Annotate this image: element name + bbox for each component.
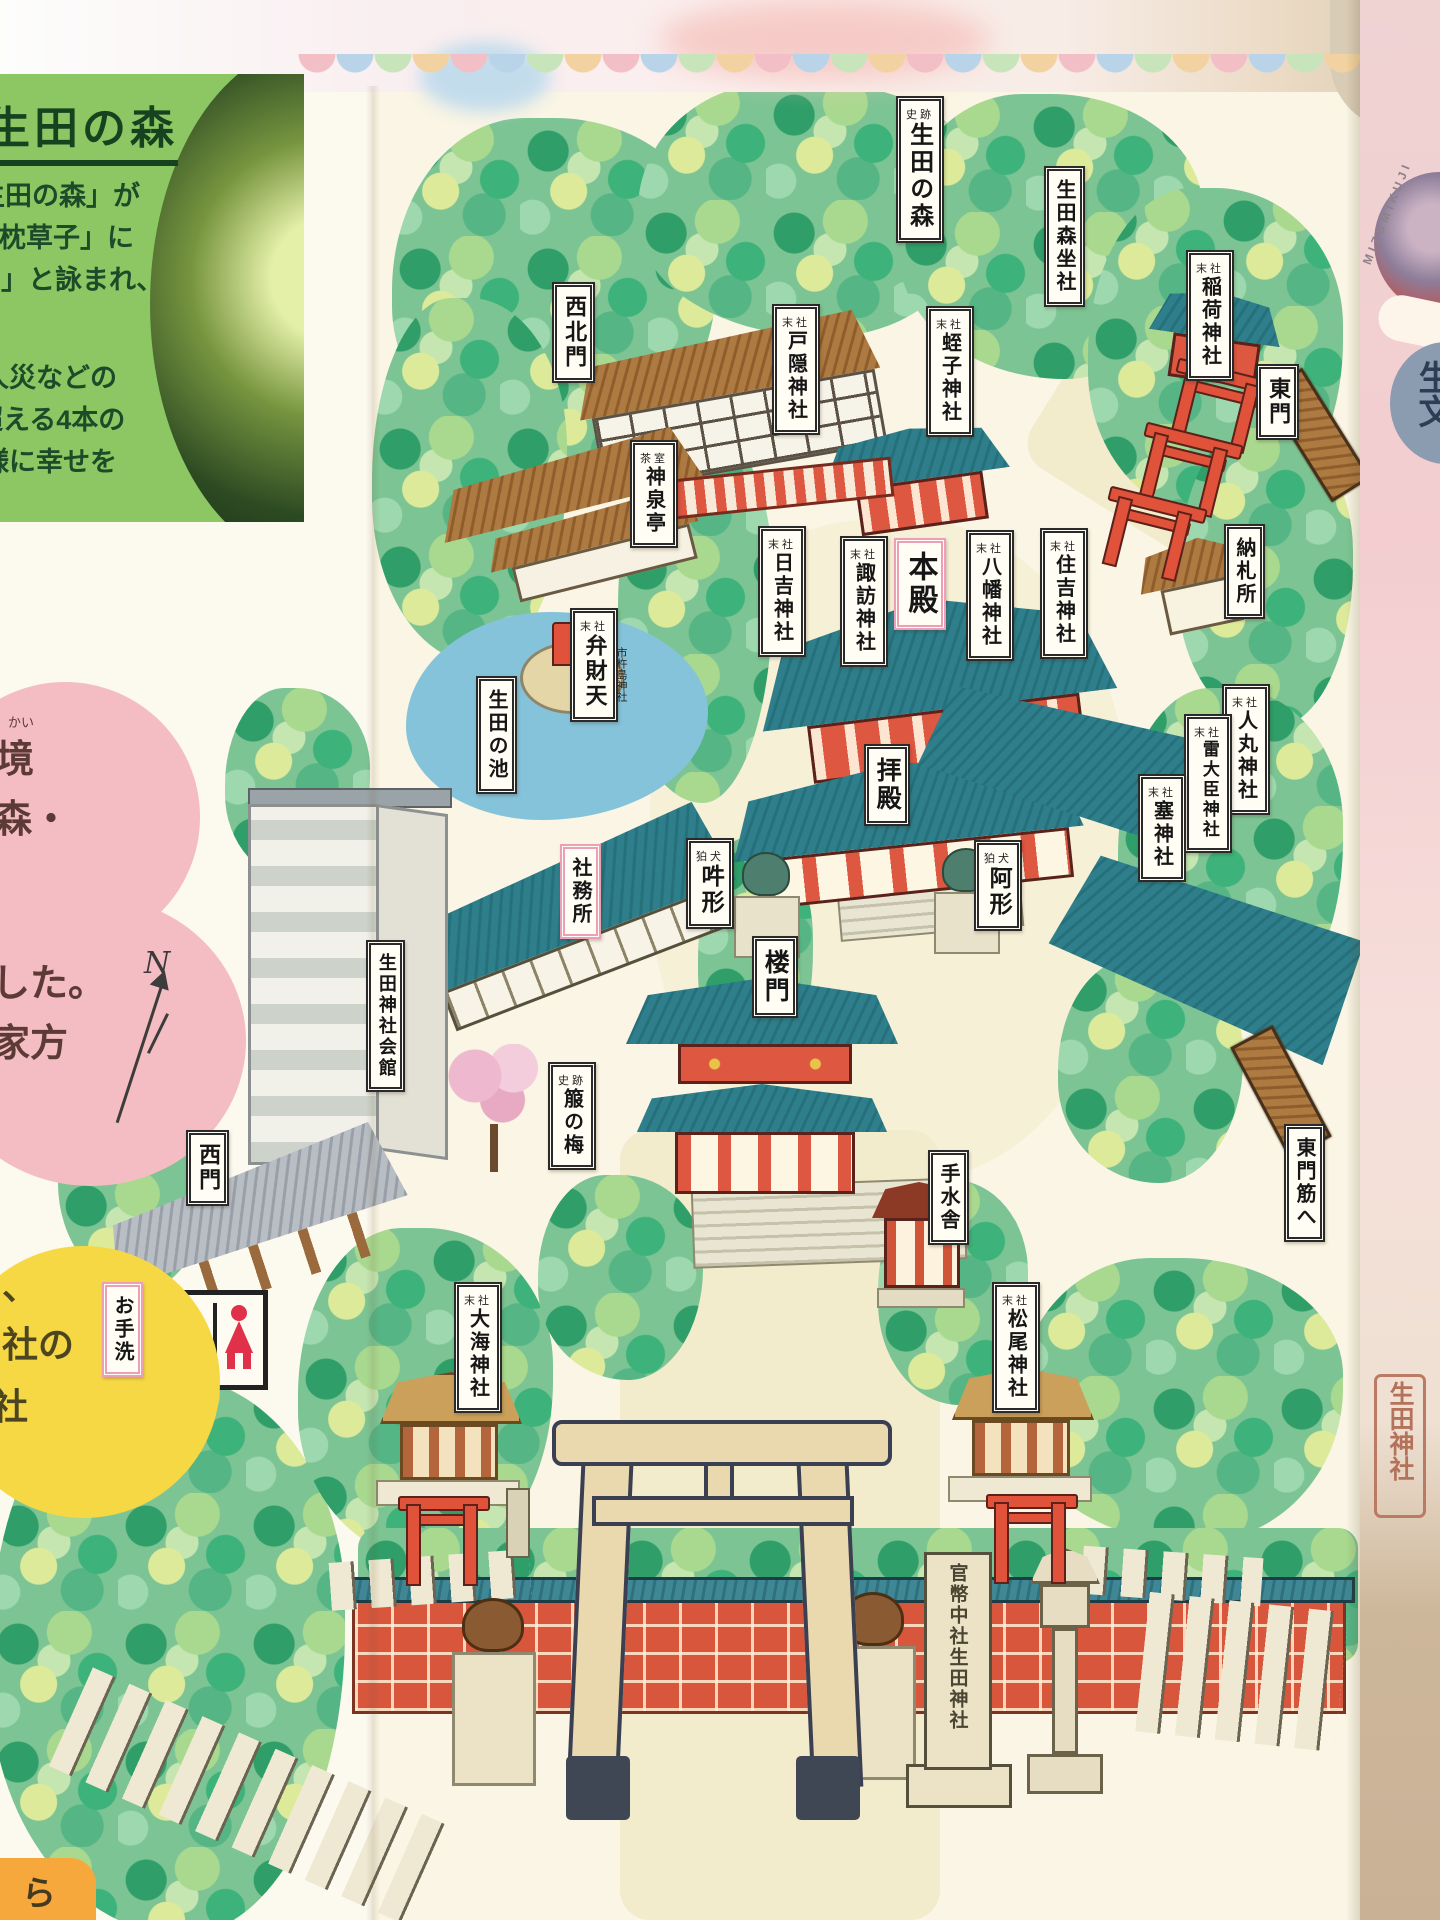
scallop-border <box>298 54 1366 90</box>
label-text: お手洗 <box>112 1295 133 1364</box>
map-label-seihokumon: 西北門 <box>552 282 595 383</box>
label-text: 戸隠神社 <box>786 330 807 422</box>
label-text: 東門筋へ <box>1294 1137 1315 1229</box>
daikai-torii <box>398 1496 486 1588</box>
label-text: 八幡神社 <box>980 556 1001 648</box>
map-label-ikutanomori: 史跡 生田の森 <box>896 96 944 243</box>
label-prefix: 末社 <box>850 549 878 560</box>
label-prefix: 末社 <box>768 539 796 550</box>
label-text: 生田神社会館 <box>376 953 395 1079</box>
map-label-nosatsusho: 納札所 <box>1224 524 1265 619</box>
label-text: 楼門 <box>762 949 788 1005</box>
map-label-higashimon: 東門 <box>1256 364 1299 440</box>
map-label-ikutanoike: 生田の池 <box>476 676 517 794</box>
daikai-body <box>400 1424 498 1480</box>
shrine-stamp-text: 生田神社 <box>1382 1381 1418 1515</box>
label-prefix: 狛犬 <box>984 853 1012 864</box>
label-text: 日吉神社 <box>772 552 793 644</box>
label-prefix: 末社 <box>1002 1295 1030 1306</box>
big-torii-right-shoe <box>796 1756 860 1820</box>
label-prefix: 史跡 <box>558 1075 586 1086</box>
orange-fragment: ら <box>0 1858 96 1920</box>
label-prefix: 末社 <box>580 621 608 632</box>
temizusha-base <box>877 1288 966 1308</box>
panel-title: 生田の森 <box>0 92 178 166</box>
map-label-ungyo: 狛犬 吽形 <box>686 838 734 929</box>
yellow-note-line1: 、 <box>2 1258 38 1310</box>
romon-pillars <box>675 1132 855 1194</box>
label-prefix: 末社 <box>976 543 1004 554</box>
stone-pedestal <box>452 1652 536 1786</box>
map-label-higashimonsuji: 東門筋へ <box>1284 1124 1325 1242</box>
map-label-shinsentei: 茶室 神泉亭 <box>630 440 678 548</box>
map-label-ikazuchi: 末社 雷大臣神社 <box>1184 714 1232 853</box>
romon-lower-roof <box>637 1084 887 1132</box>
ebira-plum-tree <box>442 1044 552 1172</box>
label-text: 生田森坐社 <box>1054 179 1075 294</box>
label-text: 西門 <box>196 1143 219 1193</box>
map-label-ikutamori-imasu: 生田森坐社 <box>1044 166 1085 307</box>
plum-trunk <box>490 1124 498 1172</box>
label-prefix: 末社 <box>936 319 964 330</box>
map-label-matsuo: 末社 松尾神社 <box>992 1282 1040 1413</box>
label-text: 塞神社 <box>1152 800 1173 869</box>
woman-icon <box>225 1305 253 1375</box>
label-text: 拝殿 <box>874 757 900 813</box>
label-prefix: 末社 <box>1194 727 1222 738</box>
map-label-sumiyoshi: 末社 住吉神社 <box>1040 528 1088 659</box>
label-prefix: 茶室 <box>640 453 668 464</box>
map-label-suwa: 末社 諏訪神社 <box>840 536 888 667</box>
label-text: 納札所 <box>1234 537 1255 606</box>
map-label-kaikan: 生田神社会館 <box>366 940 405 1092</box>
stone-pillar: 官幣中社生田神社 <box>924 1552 992 1770</box>
label-text: 大海神社 <box>468 1308 489 1400</box>
map-label-nishimon: 西門 <box>186 1130 229 1206</box>
kaikan-building <box>248 788 448 1173</box>
map-label-haiden: 拝殿 <box>864 744 910 826</box>
orange-fragment-text: ら <box>22 1866 56 1915</box>
panel-line-4: 人災などの <box>0 356 117 395</box>
label-text: 人丸神社 <box>1236 710 1257 802</box>
label-text: 社務所 <box>570 857 591 926</box>
guardian-lion-left <box>462 1598 536 1786</box>
big-torii-tiebar <box>592 1496 854 1526</box>
pink-note-line2: 森・ <box>0 788 70 843</box>
plum-blossoms <box>442 1044 552 1124</box>
label-text: 生田の池 <box>486 689 507 781</box>
label-prefix: 末社 <box>464 1295 492 1306</box>
pink-note-line1: 境 <box>0 728 34 783</box>
mizumikuji-photo-circle <box>1374 172 1440 312</box>
label-text: 手水舎 <box>938 1163 959 1232</box>
lantern-post <box>1052 1628 1078 1754</box>
label-prefix: 末社 <box>782 317 810 328</box>
panel-line-2: 「枕草子」に <box>0 216 134 255</box>
map-label-honden: 本殿 <box>894 538 946 630</box>
label-prefix: 末社 <box>1148 787 1176 798</box>
label-prefix: 狛犬 <box>696 851 724 862</box>
label-prefix: 史跡 <box>906 109 934 120</box>
panel-line-6: 様に幸せを <box>0 440 117 479</box>
map-label-ebiranoume: 史跡 箙の梅 <box>548 1062 596 1170</box>
map-label-romon: 楼門 <box>752 936 798 1018</box>
label-prefix: 末社 <box>1050 541 1078 552</box>
label-prefix: 末社 <box>1196 263 1224 274</box>
map-label-agyo: 狛犬 阿形 <box>974 840 1022 931</box>
yellow-note-line3: 社 <box>0 1378 28 1430</box>
big-torii-left-shoe <box>566 1756 630 1820</box>
map-label-otearai: お手洗 <box>102 1282 143 1377</box>
lion-figure <box>462 1598 524 1652</box>
stone-post-fence-right <box>1135 1592 1349 1752</box>
label-prefix: 末社 <box>1232 697 1260 708</box>
panel-line-5: 超える4本の <box>0 398 125 437</box>
blue-title-circle: 生文 <box>1390 342 1440 464</box>
map-label-hiyoshi: 末社 日吉神社 <box>758 526 806 657</box>
label-text: 神泉亭 <box>644 466 665 535</box>
label-text: 東門 <box>1266 377 1289 427</box>
map-label-temizusha: 手水舎 <box>928 1150 969 1245</box>
daikai-stone-lantern <box>506 1488 530 1558</box>
label-text: 本殿 <box>904 551 936 617</box>
yellow-note-line2: 社の <box>2 1316 74 1368</box>
big-torii-lintel <box>552 1420 892 1466</box>
map-label-hiruko: 末社 蛭子神社 <box>926 306 974 437</box>
map-label-hachiman: 末社 八幡神社 <box>966 530 1014 661</box>
blue-circle-text: 生文 <box>1408 360 1440 428</box>
map-label-shamusho: 社務所 <box>560 844 601 939</box>
panel-line-1: 生田の森」が <box>0 174 140 213</box>
stone-pillar-base <box>906 1764 1012 1808</box>
ikuta-forest-panel: 生田の森 生田の森」が 「枕草子」に ‥」と詠まれ、 人災などの 超える4本の … <box>0 74 304 522</box>
lion-figure <box>742 852 790 896</box>
lantern-base <box>1027 1754 1103 1794</box>
label-text: 生田の森 <box>907 122 932 230</box>
shrine-stamp: 生田神社 <box>1374 1374 1426 1518</box>
label-text: 稲荷神社 <box>1200 276 1221 368</box>
label-text: 蛭子神社 <box>940 332 961 424</box>
label-text: 弁財天 <box>582 634 605 709</box>
label-text: 阿形 <box>986 866 1010 918</box>
benzaiten-side-note: 市杵島神社 <box>613 647 629 702</box>
stone-pillar-text: 官幣中社生田神社 <box>945 1563 972 1767</box>
label-text: 諏訪神社 <box>854 562 875 654</box>
pink-note2-line2: 家方 <box>0 1012 68 1067</box>
map-label-sainokami: 末社 塞神社 <box>1138 774 1186 882</box>
label-text: 住吉神社 <box>1054 554 1075 646</box>
brochure-photo: 生田の森 生田の森」が 「枕草子」に ‥」と詠まれ、 人災などの 超える4本の … <box>0 0 1440 1920</box>
map-label-inari: 末社 稲荷神社 <box>1186 250 1234 381</box>
lantern-firebox <box>1040 1584 1090 1628</box>
matsuo-body <box>972 1420 1070 1476</box>
map-page-right-edge <box>1346 0 1360 1920</box>
romon-upper-body <box>678 1044 853 1084</box>
map-label-togakushi: 末社 戸隠神社 <box>772 304 820 435</box>
matsuo-torii <box>986 1494 1074 1586</box>
panel-line-3: ‥」と詠まれ、 <box>0 258 163 297</box>
kaikan-front-face <box>248 804 379 1165</box>
label-text: 箙の梅 <box>562 1088 583 1157</box>
label-text: 雷大臣神社 <box>1199 740 1217 840</box>
pink-note2-line1: した。 <box>0 952 106 1007</box>
label-text: 西北門 <box>562 295 585 370</box>
adjacent-page-strip: MIZUMIKUJI 生文 生田神社 <box>1360 0 1440 1920</box>
label-text: 松尾神社 <box>1006 1308 1027 1400</box>
map-label-daikai: 末社 大海神社 <box>454 1282 502 1413</box>
label-text: 吽形 <box>698 864 722 916</box>
map-label-benzaiten: 末社 弁財天 市杵島神社 <box>570 608 618 722</box>
